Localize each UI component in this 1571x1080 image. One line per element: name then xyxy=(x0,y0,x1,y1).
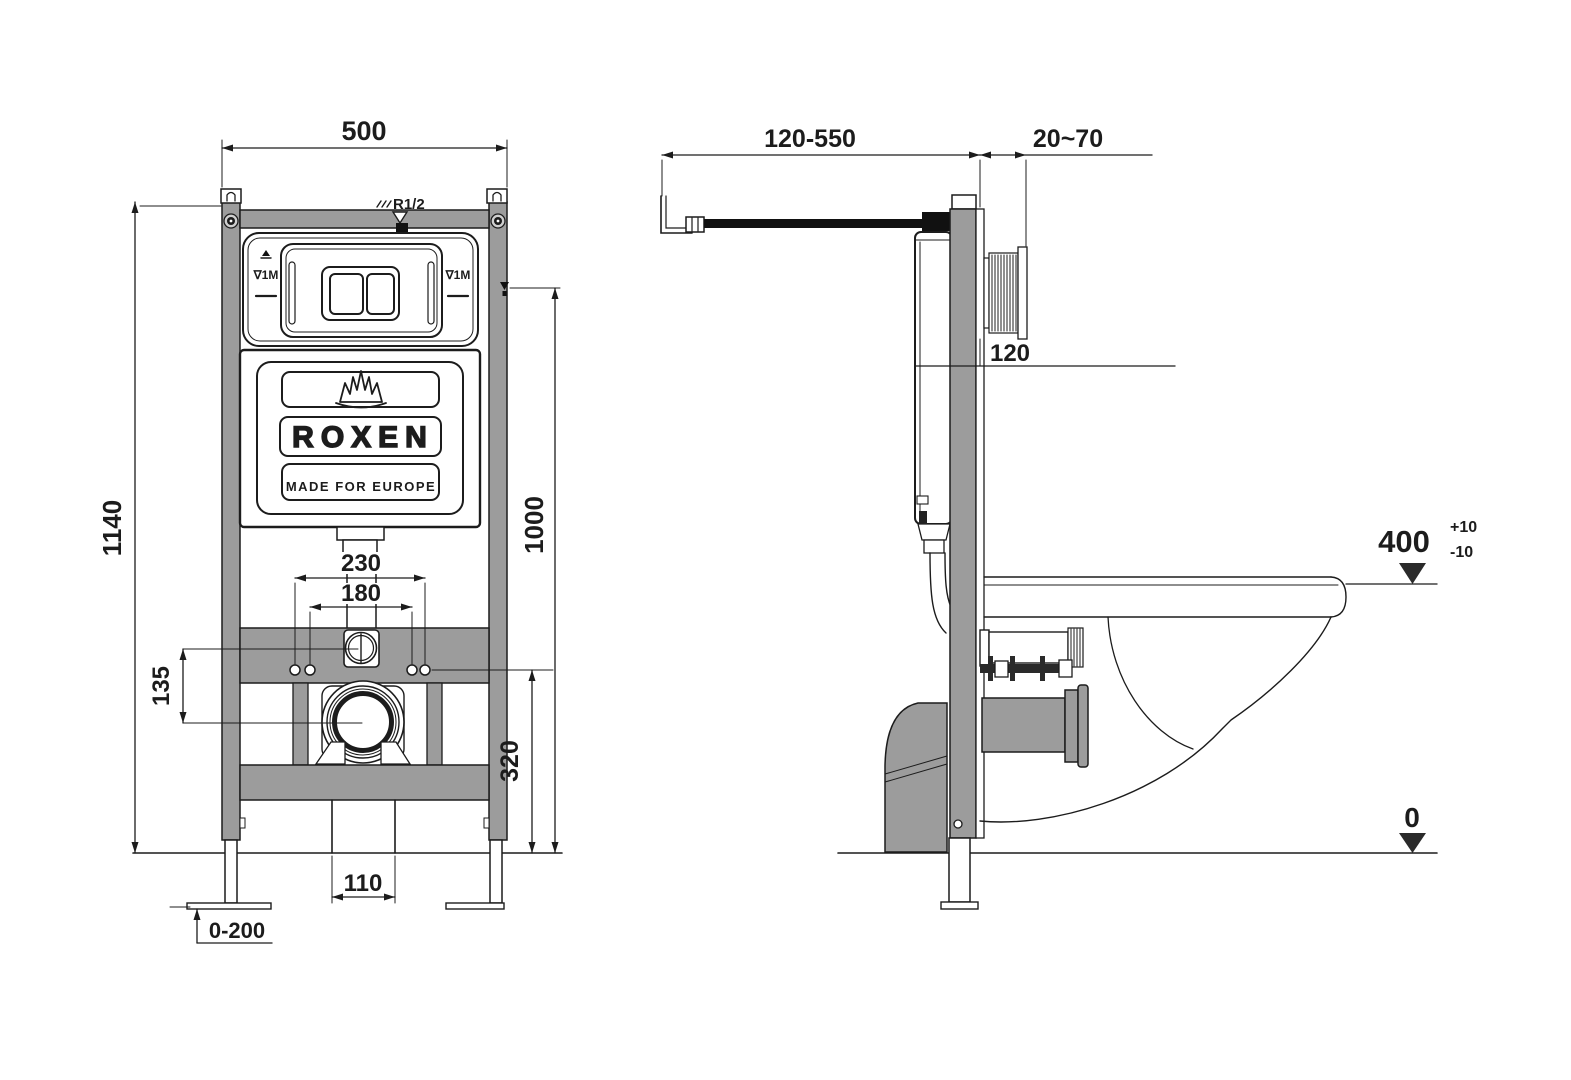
flush-button-small xyxy=(367,274,394,314)
adjustable-leg-side xyxy=(949,838,970,902)
frame-post-left xyxy=(222,202,240,840)
dim-0-200-label: 0-200 xyxy=(209,918,265,943)
front-view: R1/2 ∇1M ∇1M xyxy=(97,116,562,943)
post-hole xyxy=(954,820,962,828)
dim-0-200: 0-200 xyxy=(170,907,272,943)
pipe-clamp xyxy=(922,212,950,231)
dim-20-70-label: 20~70 xyxy=(1033,125,1103,153)
rim-height-marker: 400 +10 -10 xyxy=(1346,519,1477,584)
dim-500: 500 xyxy=(222,116,507,187)
dim-1140: 1140 xyxy=(97,202,221,853)
adjustable-leg-left xyxy=(225,840,237,903)
bowl-rim-tip xyxy=(1331,577,1346,617)
dim-110: 110 xyxy=(332,856,395,903)
floor-level-marker: 0 xyxy=(1399,802,1426,853)
dim-0-label: 0 xyxy=(1404,802,1420,833)
drain-bracket-right xyxy=(381,742,410,764)
drain-pipe-side xyxy=(982,685,1088,767)
dim-180-label: 180 xyxy=(341,580,381,607)
supply-coupler xyxy=(686,217,704,232)
adjustable-leg-right xyxy=(490,840,502,903)
side-view: 120 xyxy=(661,125,1477,909)
dim-135-label: 135 xyxy=(148,666,175,706)
plate-clip-left xyxy=(289,262,295,324)
mounting-hole xyxy=(290,665,300,675)
top-crossbar xyxy=(240,210,489,228)
level-label-left: ∇1M xyxy=(253,268,279,282)
drain-bracket-left xyxy=(316,742,345,764)
technical-drawing-canvas: R1/2 ∇1M ∇1M xyxy=(0,0,1571,1080)
flush-bend-outer xyxy=(930,553,946,633)
tank-fitting xyxy=(917,496,928,504)
flush-button-large xyxy=(330,274,363,314)
level-triangle-icon xyxy=(1399,833,1426,853)
mounting-hole xyxy=(420,665,430,675)
dim-120-550: 120-550 xyxy=(662,125,980,207)
dim-110-label: 110 xyxy=(344,870,383,897)
foot-plate-right xyxy=(446,903,504,909)
foot-plate-left xyxy=(187,903,271,909)
dim-400-label: 400 xyxy=(1378,524,1430,559)
dim-20-70: 20~70 xyxy=(980,125,1152,246)
wall-bracket-ear-left xyxy=(221,189,241,203)
tank-fitting-dark xyxy=(919,511,927,524)
post-tab-right xyxy=(484,818,489,828)
bowl-inner-curve xyxy=(1108,617,1193,749)
water-supply-pipe xyxy=(661,196,950,233)
plate-clip-right xyxy=(428,262,434,324)
dim-500-label: 500 xyxy=(341,116,386,146)
dim-1140-label: 1140 xyxy=(97,500,127,556)
wall-bracket-ear-right xyxy=(487,189,507,203)
dim-120-550-label: 120-550 xyxy=(764,125,856,153)
brand-tagline: MADE FOR EUROPE xyxy=(286,479,436,494)
level-triangle-icon xyxy=(1399,563,1426,584)
supply-thread-label: R1/2 xyxy=(393,196,425,213)
lower-crossbar xyxy=(240,765,489,800)
dim-1000-label: 1000 xyxy=(519,496,549,554)
dim-400-tol-minus: -10 xyxy=(1450,544,1473,561)
dim-320-label: 320 xyxy=(496,740,524,782)
foot-plate-side xyxy=(941,902,978,909)
dim-120-label: 120 xyxy=(990,340,1030,367)
drain-elbow xyxy=(885,703,947,852)
tank-neck-upper xyxy=(337,527,384,540)
brand-name: ROXEN xyxy=(292,421,434,454)
screw-icon xyxy=(491,214,505,228)
strut-left xyxy=(293,683,308,765)
flush-plate-spacer-bellows xyxy=(984,247,1027,339)
mounting-hole xyxy=(407,665,417,675)
strut-right xyxy=(427,683,442,765)
supply-pipe xyxy=(704,219,922,228)
frame-post-side xyxy=(950,209,976,838)
dim-230-label: 230 xyxy=(341,550,381,577)
dim-400-tol-plus: +10 xyxy=(1450,519,1477,536)
level-label-right: ∇1M xyxy=(445,268,471,282)
side-ear-tab xyxy=(952,195,976,209)
post-tab-left xyxy=(240,818,245,828)
installation-drawing: R1/2 ∇1M ∇1M xyxy=(0,0,1571,1080)
screw-icon xyxy=(224,214,238,228)
mounting-hole xyxy=(305,665,315,675)
supply-port xyxy=(396,223,408,233)
cistern-tank-side xyxy=(915,232,952,633)
